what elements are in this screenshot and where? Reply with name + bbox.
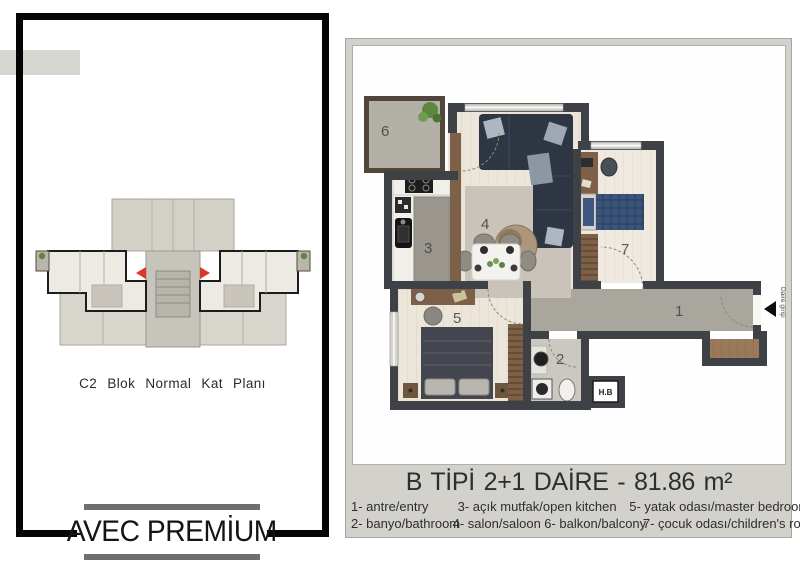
apartment-floor-plan: H.B Daire girişi 6 4 3 5 2 7 1	[353, 46, 787, 466]
kitchen-counter	[393, 173, 450, 289]
brand-logo: AVEC PREMİUM	[77, 504, 267, 560]
room-number-bedroom: 5	[453, 310, 461, 327]
entry-door-opening	[753, 295, 761, 325]
washbasin-icon	[534, 352, 548, 366]
logo-bar-top	[84, 504, 260, 510]
shaft-label: H.B	[599, 388, 613, 397]
logo-bar-bottom	[84, 554, 260, 560]
building-floor-plan-thumbnail	[28, 193, 318, 355]
logo-text: AVEC PREMİUM	[67, 517, 277, 547]
floor-plan-caption: C2 Blok Normal Kat Planı	[16, 376, 329, 391]
single-bed-icon	[580, 194, 644, 230]
wardrobe-icon	[508, 324, 523, 401]
room-number-children: 7	[621, 241, 629, 258]
room-number-entry: 1	[675, 303, 683, 320]
apartment-plan-panel: H.B Daire girişi 6 4 3 5 2 7 1	[352, 45, 786, 465]
legend-item-master-bedroom: 5- yatak odası/master bedroom	[629, 499, 800, 514]
room-number-balcony: 6	[381, 123, 389, 140]
oven-icon	[395, 197, 411, 213]
legend-item-children-room: 7- çocuk odası/children's room	[643, 516, 800, 531]
apartment-title: B TİPİ 2+1 DAİRE - 81.86 m²	[352, 468, 786, 497]
desk-chair-icon	[424, 307, 442, 325]
room-number-kitchen: 3	[424, 240, 432, 257]
entry-porch-floor	[710, 339, 759, 358]
legend-item-entry: 1- antre/entry	[351, 499, 454, 514]
legend-item-salon: 4- salon/saloon	[453, 516, 541, 531]
legend-row-2: 2- banyo/bathroom 4- salon/saloon 6- bal…	[351, 516, 789, 531]
entry-arrow-icon	[764, 301, 776, 317]
room-number-bathroom: 2	[556, 351, 564, 368]
legend-row-1: 1- antre/entry 3- açık mutfak/open kitch…	[351, 499, 789, 514]
brochure-page: C2 Blok Normal Kat Planı AVEC PREMİUM	[0, 0, 800, 566]
room-number-salon: 4	[481, 216, 489, 233]
legend-item-bathroom: 2- banyo/bathroom	[351, 516, 449, 531]
entrance-arrow-left-icon	[136, 267, 146, 279]
entrance-arrow-right-icon	[200, 267, 210, 279]
balcony-room	[364, 96, 445, 173]
air-shaft: H.B	[585, 376, 625, 408]
legend-item-balcony: 6- balkon/balcony	[544, 516, 639, 531]
entry-direction-label: Daire girişi	[779, 287, 786, 318]
desk-chair-icon	[601, 158, 617, 176]
legend-item-kitchen: 3- açık mutfak/open kitchen	[458, 499, 626, 514]
toilet-icon	[559, 379, 575, 401]
